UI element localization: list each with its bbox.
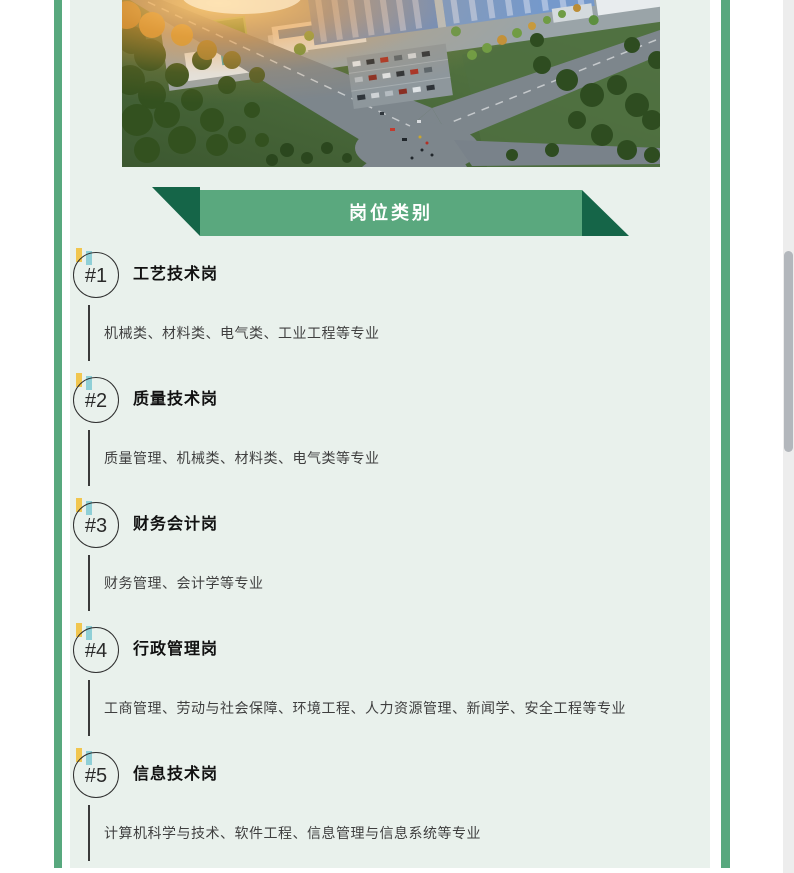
hero-illustration [122, 0, 660, 167]
sunset-glow [122, 0, 660, 167]
job-majors: 质量管理、机械类、材料类、电气类等专业 [104, 430, 380, 486]
job-number-badge: #2 [73, 377, 119, 423]
job-number-badge: #4 [73, 627, 119, 673]
job-majors: 计算机科学与技术、软件工程、信息管理与信息系统等专业 [104, 805, 481, 861]
job-number-badge: #1 [73, 252, 119, 298]
majors-divider-line [88, 680, 90, 736]
job-title: 工艺技术岗 [133, 252, 218, 298]
panel-left-border [54, 0, 62, 868]
hero-image [122, 0, 660, 167]
job-title: 财务会计岗 [133, 502, 218, 548]
job-title: 质量技术岗 [133, 377, 218, 423]
job-title: 信息技术岗 [133, 752, 218, 798]
scrollbar-thumb[interactable] [784, 251, 793, 452]
job-number-badge: #5 [73, 752, 119, 798]
majors-divider-line [88, 805, 90, 861]
majors-divider-line [88, 555, 90, 611]
job-majors: 机械类、材料类、电气类、工业工程等专业 [104, 305, 380, 361]
job-title: 行政管理岗 [133, 627, 218, 673]
panel-right-border [721, 0, 730, 868]
majors-divider-line [88, 430, 90, 486]
job-majors: 工商管理、劳动与社会保障、环境工程、人力资源管理、新闻学、安全工程等专业 [104, 680, 626, 736]
job-majors: 财务管理、会计学等专业 [104, 555, 264, 611]
job-number-badge: #3 [73, 502, 119, 548]
section-title-ribbon: 岗位类别 [200, 190, 582, 236]
majors-divider-line [88, 305, 90, 361]
